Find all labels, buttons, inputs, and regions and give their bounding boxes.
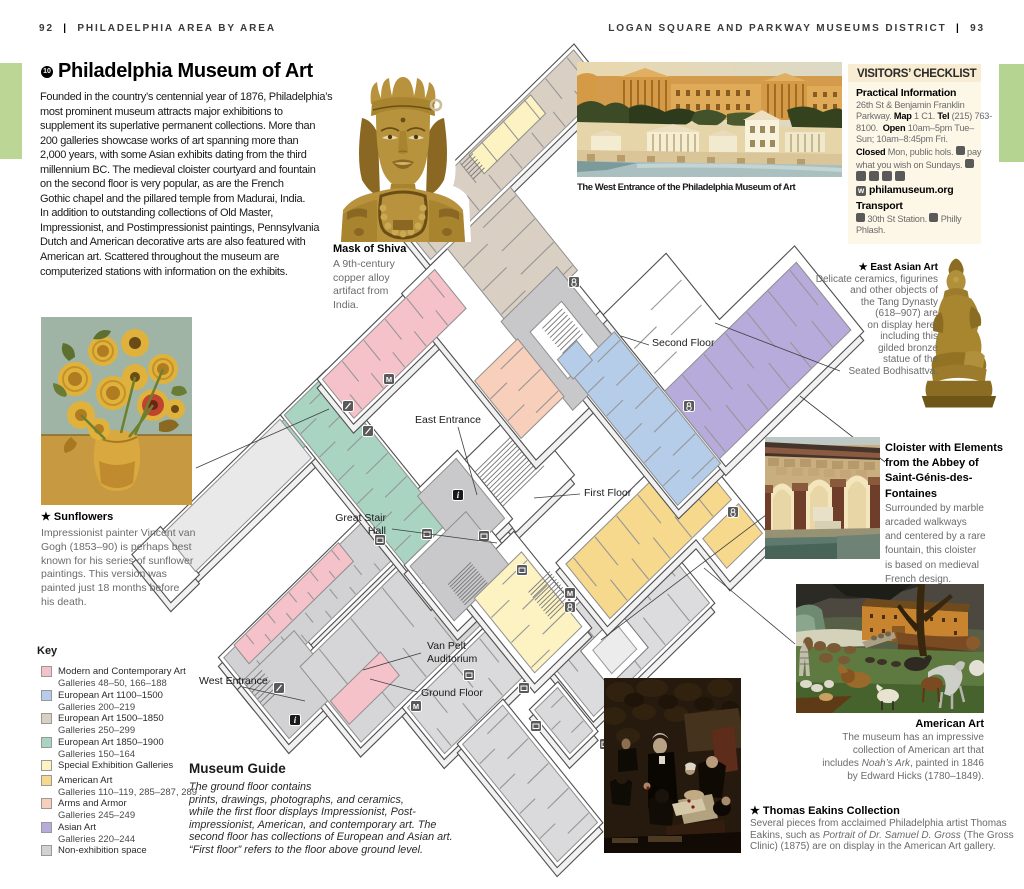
svg-text:M: M [386,375,392,384]
svg-text:M: M [567,589,573,598]
svg-text:M: M [413,702,419,711]
